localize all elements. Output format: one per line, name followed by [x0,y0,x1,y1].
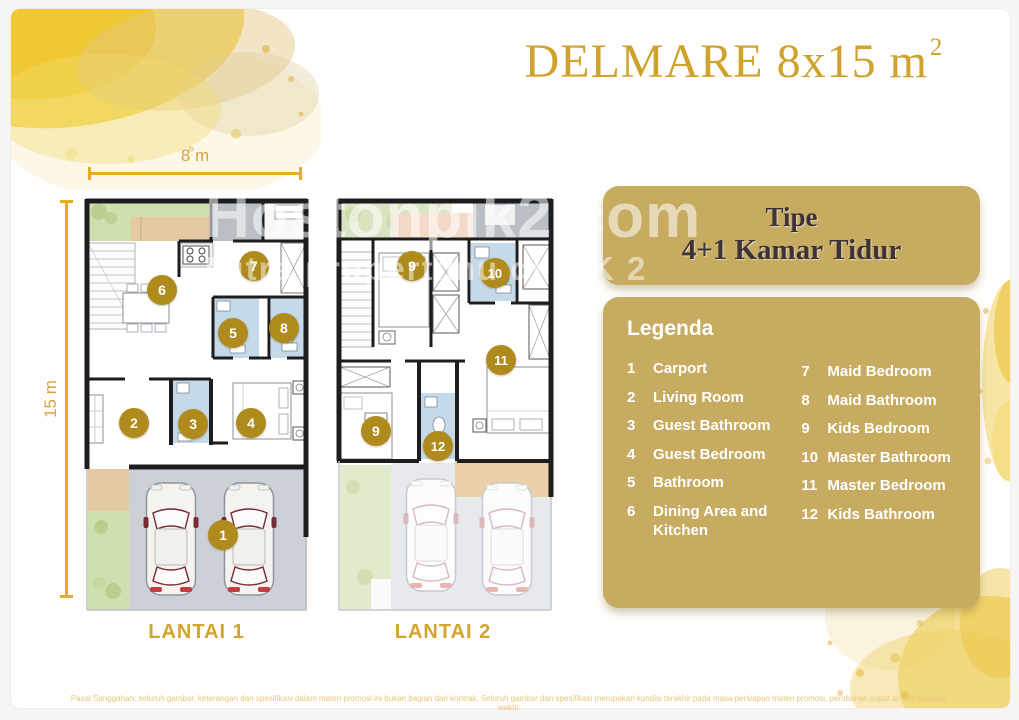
legend-item-number: 12 [801,505,827,525]
room-marker-3: 3 [178,409,208,439]
legend-item-2: 2Living Room [627,388,801,408]
floor-label-lantai-1: LANTAI 1 [83,621,310,644]
legend-item-8: 8Maid Bathroom [801,391,956,411]
legend-item-label: Carport [653,359,801,379]
page-title-superscript: 2 [930,34,944,61]
legend-item-number: 3 [627,416,653,436]
room-marker-12: 12 [423,431,453,461]
legend-columns: 1Carport2Living Room3Guest Bathroom4Gues… [627,359,956,550]
dimension-width-line [88,172,302,175]
room-marker-9: 9 [361,416,391,446]
legend-item-10: 10Master Bathroom [801,448,956,468]
legend-item-number: 5 [627,473,653,493]
room-marker-8: 8 [269,313,299,343]
legend-item-label: Maid Bathroom [827,391,956,411]
floorplan-lantai-1: 12345678 [83,197,310,613]
legend-item-number: 1 [627,359,653,379]
room-marker-1: 1 [208,520,238,550]
legend-item-11: 11Master Bedroom [801,476,956,496]
room-marker-2: 2 [119,408,149,438]
dimension-width-label: 8 m [88,146,302,166]
room-marker-4: 4 [236,408,266,438]
legend-item-label: Living Room [653,388,801,408]
floor-label-lantai-2: LANTAI 2 [331,621,555,644]
legend-item-number: 11 [801,476,827,496]
legend-item-1: 1Carport [627,359,801,379]
floorplan-lantai-1-drawing [83,197,310,613]
legend-item-number: 10 [801,448,827,468]
dimension-width: 8 m [88,146,302,175]
legend-item-number: 9 [801,419,827,439]
legend-title: Legenda [627,317,956,341]
legend-item-label: Bathroom [653,473,801,493]
room-marker-6: 6 [147,275,177,305]
legend-panel: Legenda 1Carport2Living Room3Guest Bathr… [603,297,980,608]
room-marker-10: 10 [480,258,510,288]
legend-item-4: 4Guest Bedroom [627,445,801,465]
legend-item-3: 3Guest Bathroom [627,416,801,436]
brochure-page: { "title": {"main": "DELMARE 8x15 m", "s… [0,0,1019,720]
room-marker-7: 7 [239,251,269,281]
floorplan-lantai-2-drawing [335,197,555,613]
room-marker-11: 11 [486,345,516,375]
legend-item-label: Master Bathroom [827,448,956,468]
legend-item-5: 5Bathroom [627,473,801,493]
legend-column-left: 1Carport2Living Room3Guest Bathroom4Gues… [627,359,801,550]
floorplan-lantai-2: 91011912 [335,197,555,613]
legend-item-number: 8 [801,391,827,411]
legend-item-12: 12Kids Bathroom [801,505,956,525]
legend-item-7: 7Maid Bedroom [801,362,956,382]
legend-item-label: Master Bedroom [827,476,956,496]
dimension-height: 15 m [65,200,68,598]
dimension-height-label: 15 m [41,380,61,418]
room-marker-5: 5 [218,318,248,348]
legend-item-label: Kids Bedroom [827,419,956,439]
type-panel-line1: Tipe [765,203,817,233]
legend-item-label: Maid Bedroom [827,362,956,382]
legend-item-label: Guest Bathroom [653,416,801,436]
legend-item-6: 6Dining Area and Kitchen [627,502,801,541]
type-panel: Tipe 4+1 Kamar Tidur [603,186,980,285]
disclaimer-text: Pasal Sanggahan: seluruh gambar, keteran… [70,694,949,712]
legend-item-number: 6 [627,502,653,541]
room-marker-9: 9 [397,251,427,281]
legend-item-label: Dining Area and Kitchen [653,502,801,541]
page-title: DELMARE 8x15 m2 [478,34,990,89]
type-panel-line2: 4+1 Kamar Tidur [682,233,902,268]
legend-item-label: Kids Bathroom [827,505,956,525]
legend-item-number: 7 [801,362,827,382]
page-title-text: DELMARE 8x15 m [525,35,928,88]
legend-item-number: 2 [627,388,653,408]
legend-item-label: Guest Bedroom [653,445,801,465]
legend-column-right: 7Maid Bedroom8Maid Bathroom9Kids Bedroom… [801,359,956,550]
legend-item-9: 9Kids Bedroom [801,419,956,439]
legend-item-number: 4 [627,445,653,465]
